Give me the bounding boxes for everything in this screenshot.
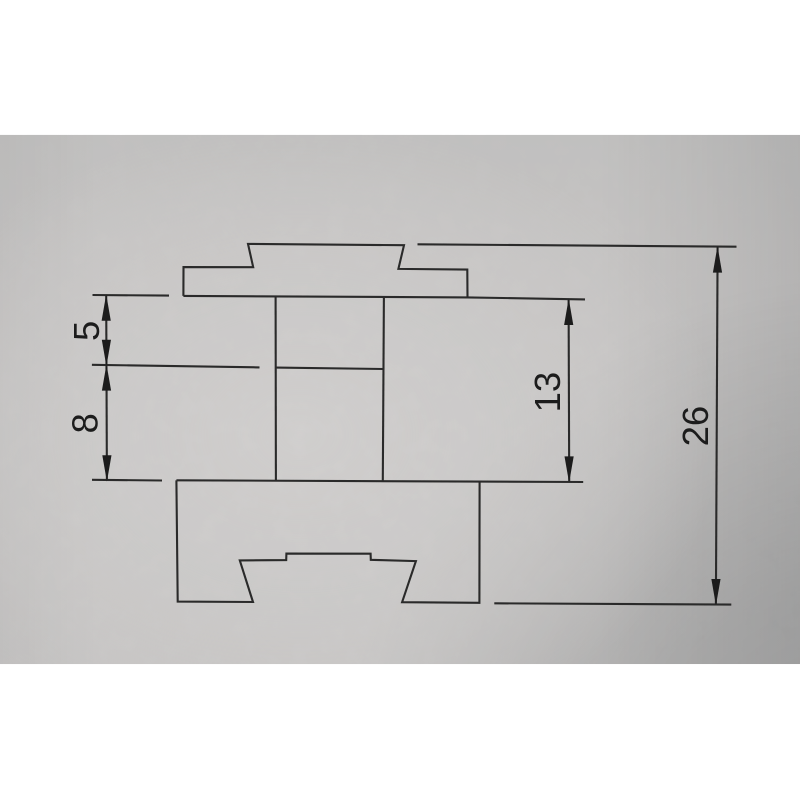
svg-text:13: 13 bbox=[527, 372, 568, 413]
svg-text:26: 26 bbox=[675, 406, 716, 447]
svg-text:8: 8 bbox=[64, 413, 105, 433]
svg-text:5: 5 bbox=[66, 321, 107, 341]
